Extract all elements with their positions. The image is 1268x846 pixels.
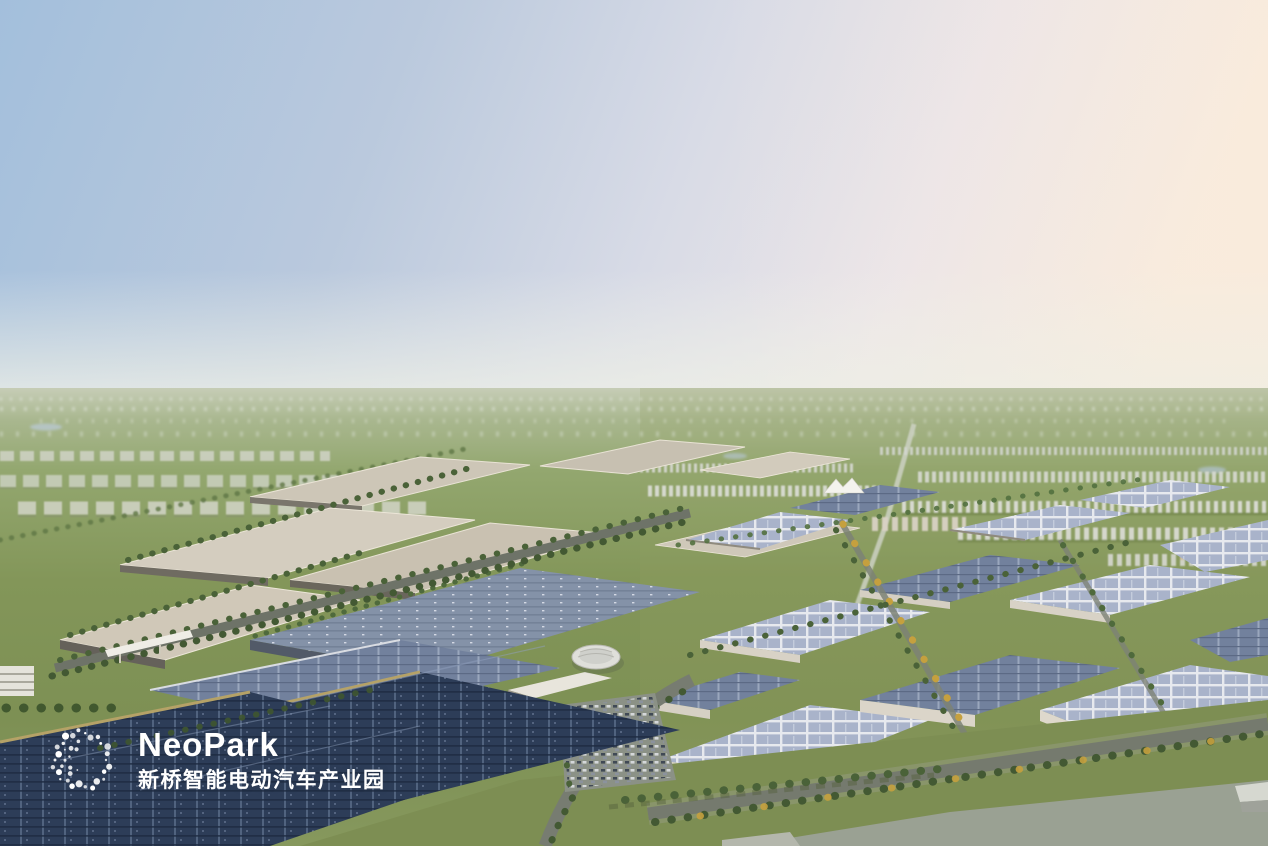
logo-dot [102,778,105,781]
logo-dot [55,751,62,758]
logo-dot [87,735,93,741]
logo-dot [62,733,69,740]
logo-dot [93,778,100,785]
logo-dot [84,785,87,788]
logo-dot [74,747,78,751]
logo-dot [84,732,86,734]
logo-dot [62,742,65,745]
logo-dot [104,743,111,750]
logo-dot [69,746,74,751]
logo-dot [105,759,107,761]
aerial-render: NeoPark 新桥智能电动汽车产业园 [0,0,1268,846]
distant-water [30,424,62,431]
sunset-glow [0,0,1268,402]
logo-dot [64,759,67,762]
logo-dot [102,769,106,773]
logo-dot [68,755,70,757]
distant-water [723,453,747,459]
logo-dot [106,764,112,770]
logo-dot [76,780,83,787]
logo-dot [55,744,60,749]
logo-dot [68,771,73,776]
logo-dot [76,769,78,771]
logo-dot [51,765,55,769]
logo-dot [90,786,95,791]
logo-dot [60,764,64,768]
logo-dot [76,728,80,732]
logo-dot [68,766,72,770]
logo-dot [59,778,61,780]
logo-dot [69,783,75,789]
logo-dot [54,759,57,762]
logo-dot [96,735,100,739]
logo-dot [99,742,102,745]
brand-subtitle-zh: 新桥智能电动汽车产业园 [138,770,386,791]
slab-building-wall [1240,800,1268,812]
brand-wordmark: NeoPark [138,728,386,761]
dot-ring-logo-icon [42,720,122,800]
watermark-text: NeoPark 新桥智能电动汽车产业园 [138,720,386,791]
logo-dot [70,733,76,739]
logo-dot [105,751,110,756]
neopark-watermark: NeoPark 新桥智能电动汽车产业园 [42,720,386,800]
logo-dot [77,740,81,744]
logo-dot [56,769,62,775]
sky [0,0,1268,402]
logo-dot [66,779,70,783]
logo-dot [64,749,66,751]
